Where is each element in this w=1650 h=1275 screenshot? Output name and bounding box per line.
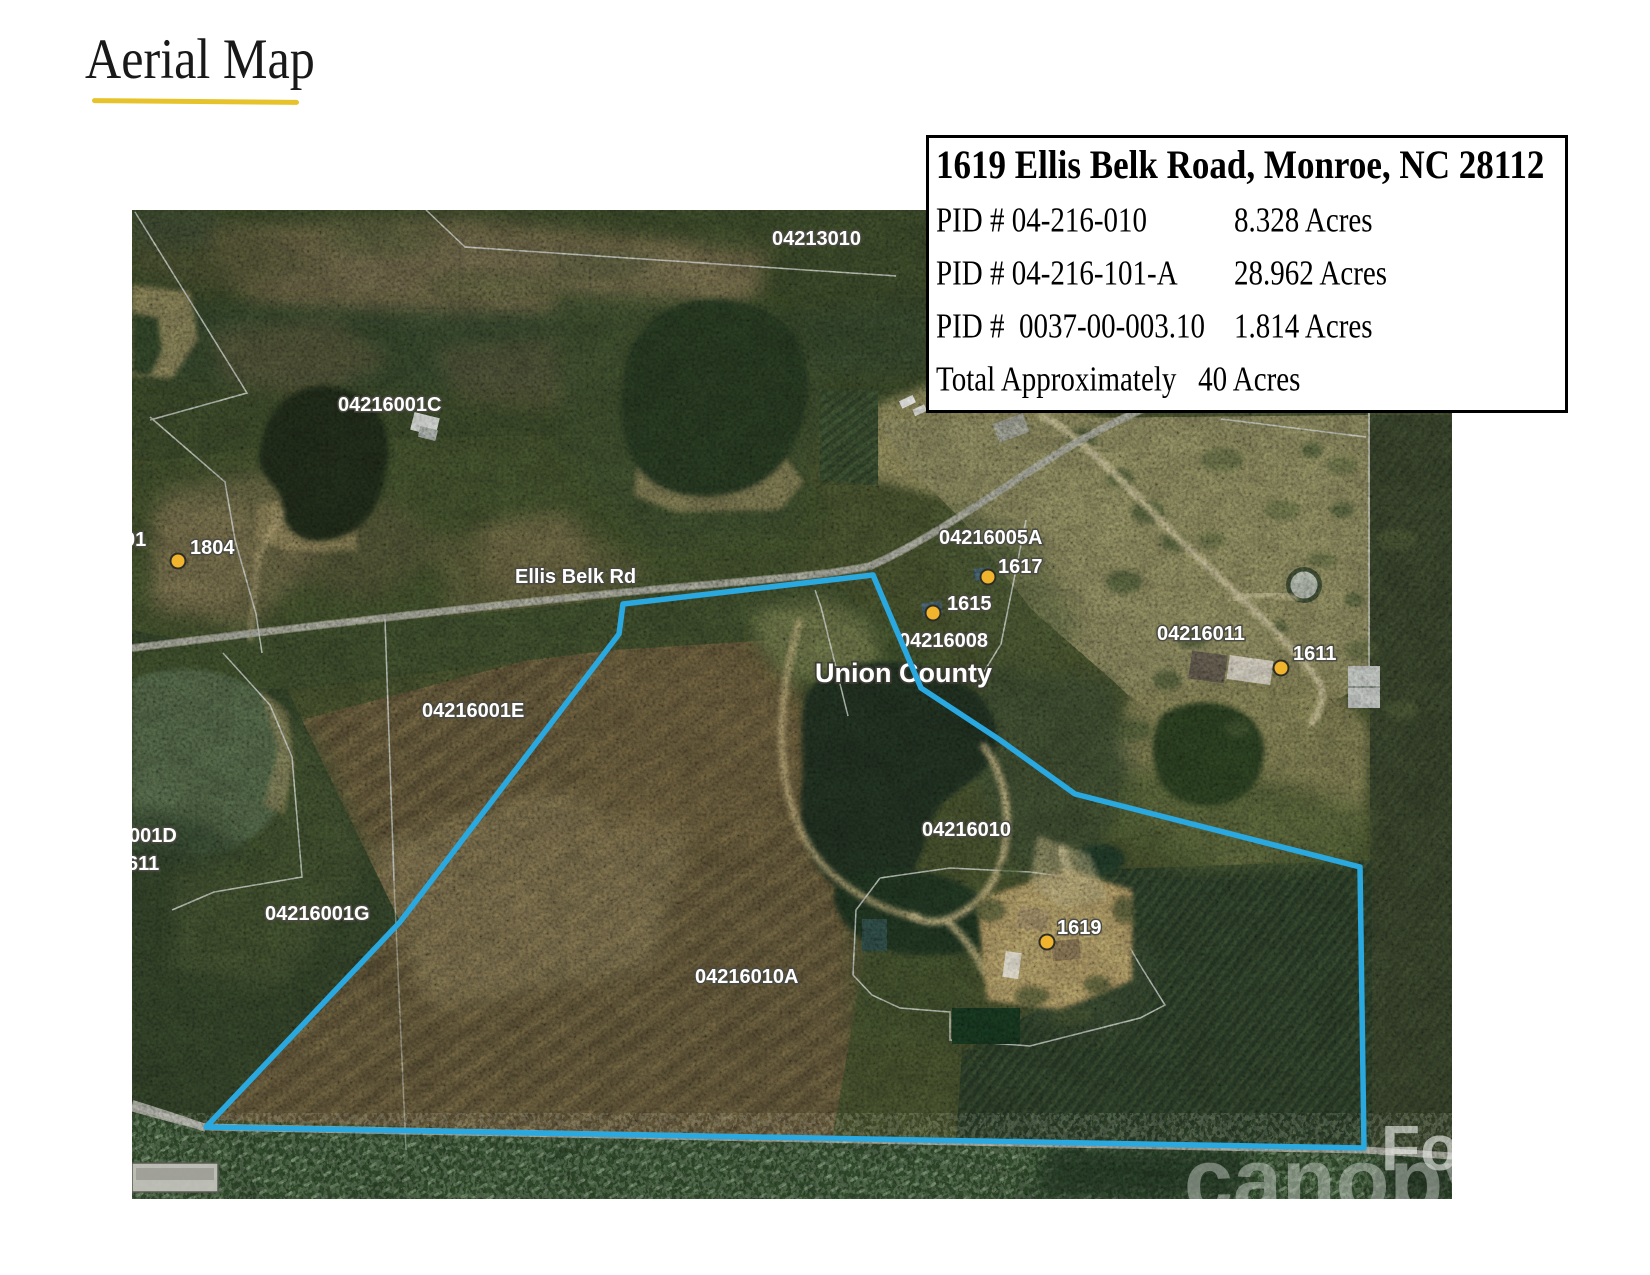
svg-text:Ellis Belk Rd: Ellis Belk Rd <box>515 566 636 588</box>
svg-text:1804: 1804 <box>190 537 235 559</box>
svg-text:Union County: Union County <box>815 658 992 688</box>
svg-text:04216010A: 04216010A <box>695 966 798 988</box>
svg-text:1611: 1611 <box>1293 643 1336 665</box>
svg-text:04216001E: 04216001E <box>422 700 524 722</box>
svg-text:04216010: 04216010 <box>922 819 1011 841</box>
svg-text:01: 01 <box>132 529 146 551</box>
svg-text:1617: 1617 <box>998 556 1043 578</box>
svg-text:1619: 1619 <box>1057 917 1102 939</box>
svg-text:04213010: 04213010 <box>772 228 861 250</box>
svg-text:611: 611 <box>132 853 159 875</box>
svg-text:04216005A: 04216005A <box>939 527 1042 549</box>
svg-text:1615: 1615 <box>947 593 992 615</box>
svg-text:04216011: 04216011 <box>1157 623 1245 645</box>
svg-text:canopy: canopy <box>1184 1130 1452 1199</box>
svg-text:04216001G: 04216001G <box>265 903 370 925</box>
svg-text:001D: 001D <box>132 825 177 847</box>
svg-text:04216001C: 04216001C <box>338 394 441 416</box>
svg-text:04216008: 04216008 <box>899 630 988 652</box>
